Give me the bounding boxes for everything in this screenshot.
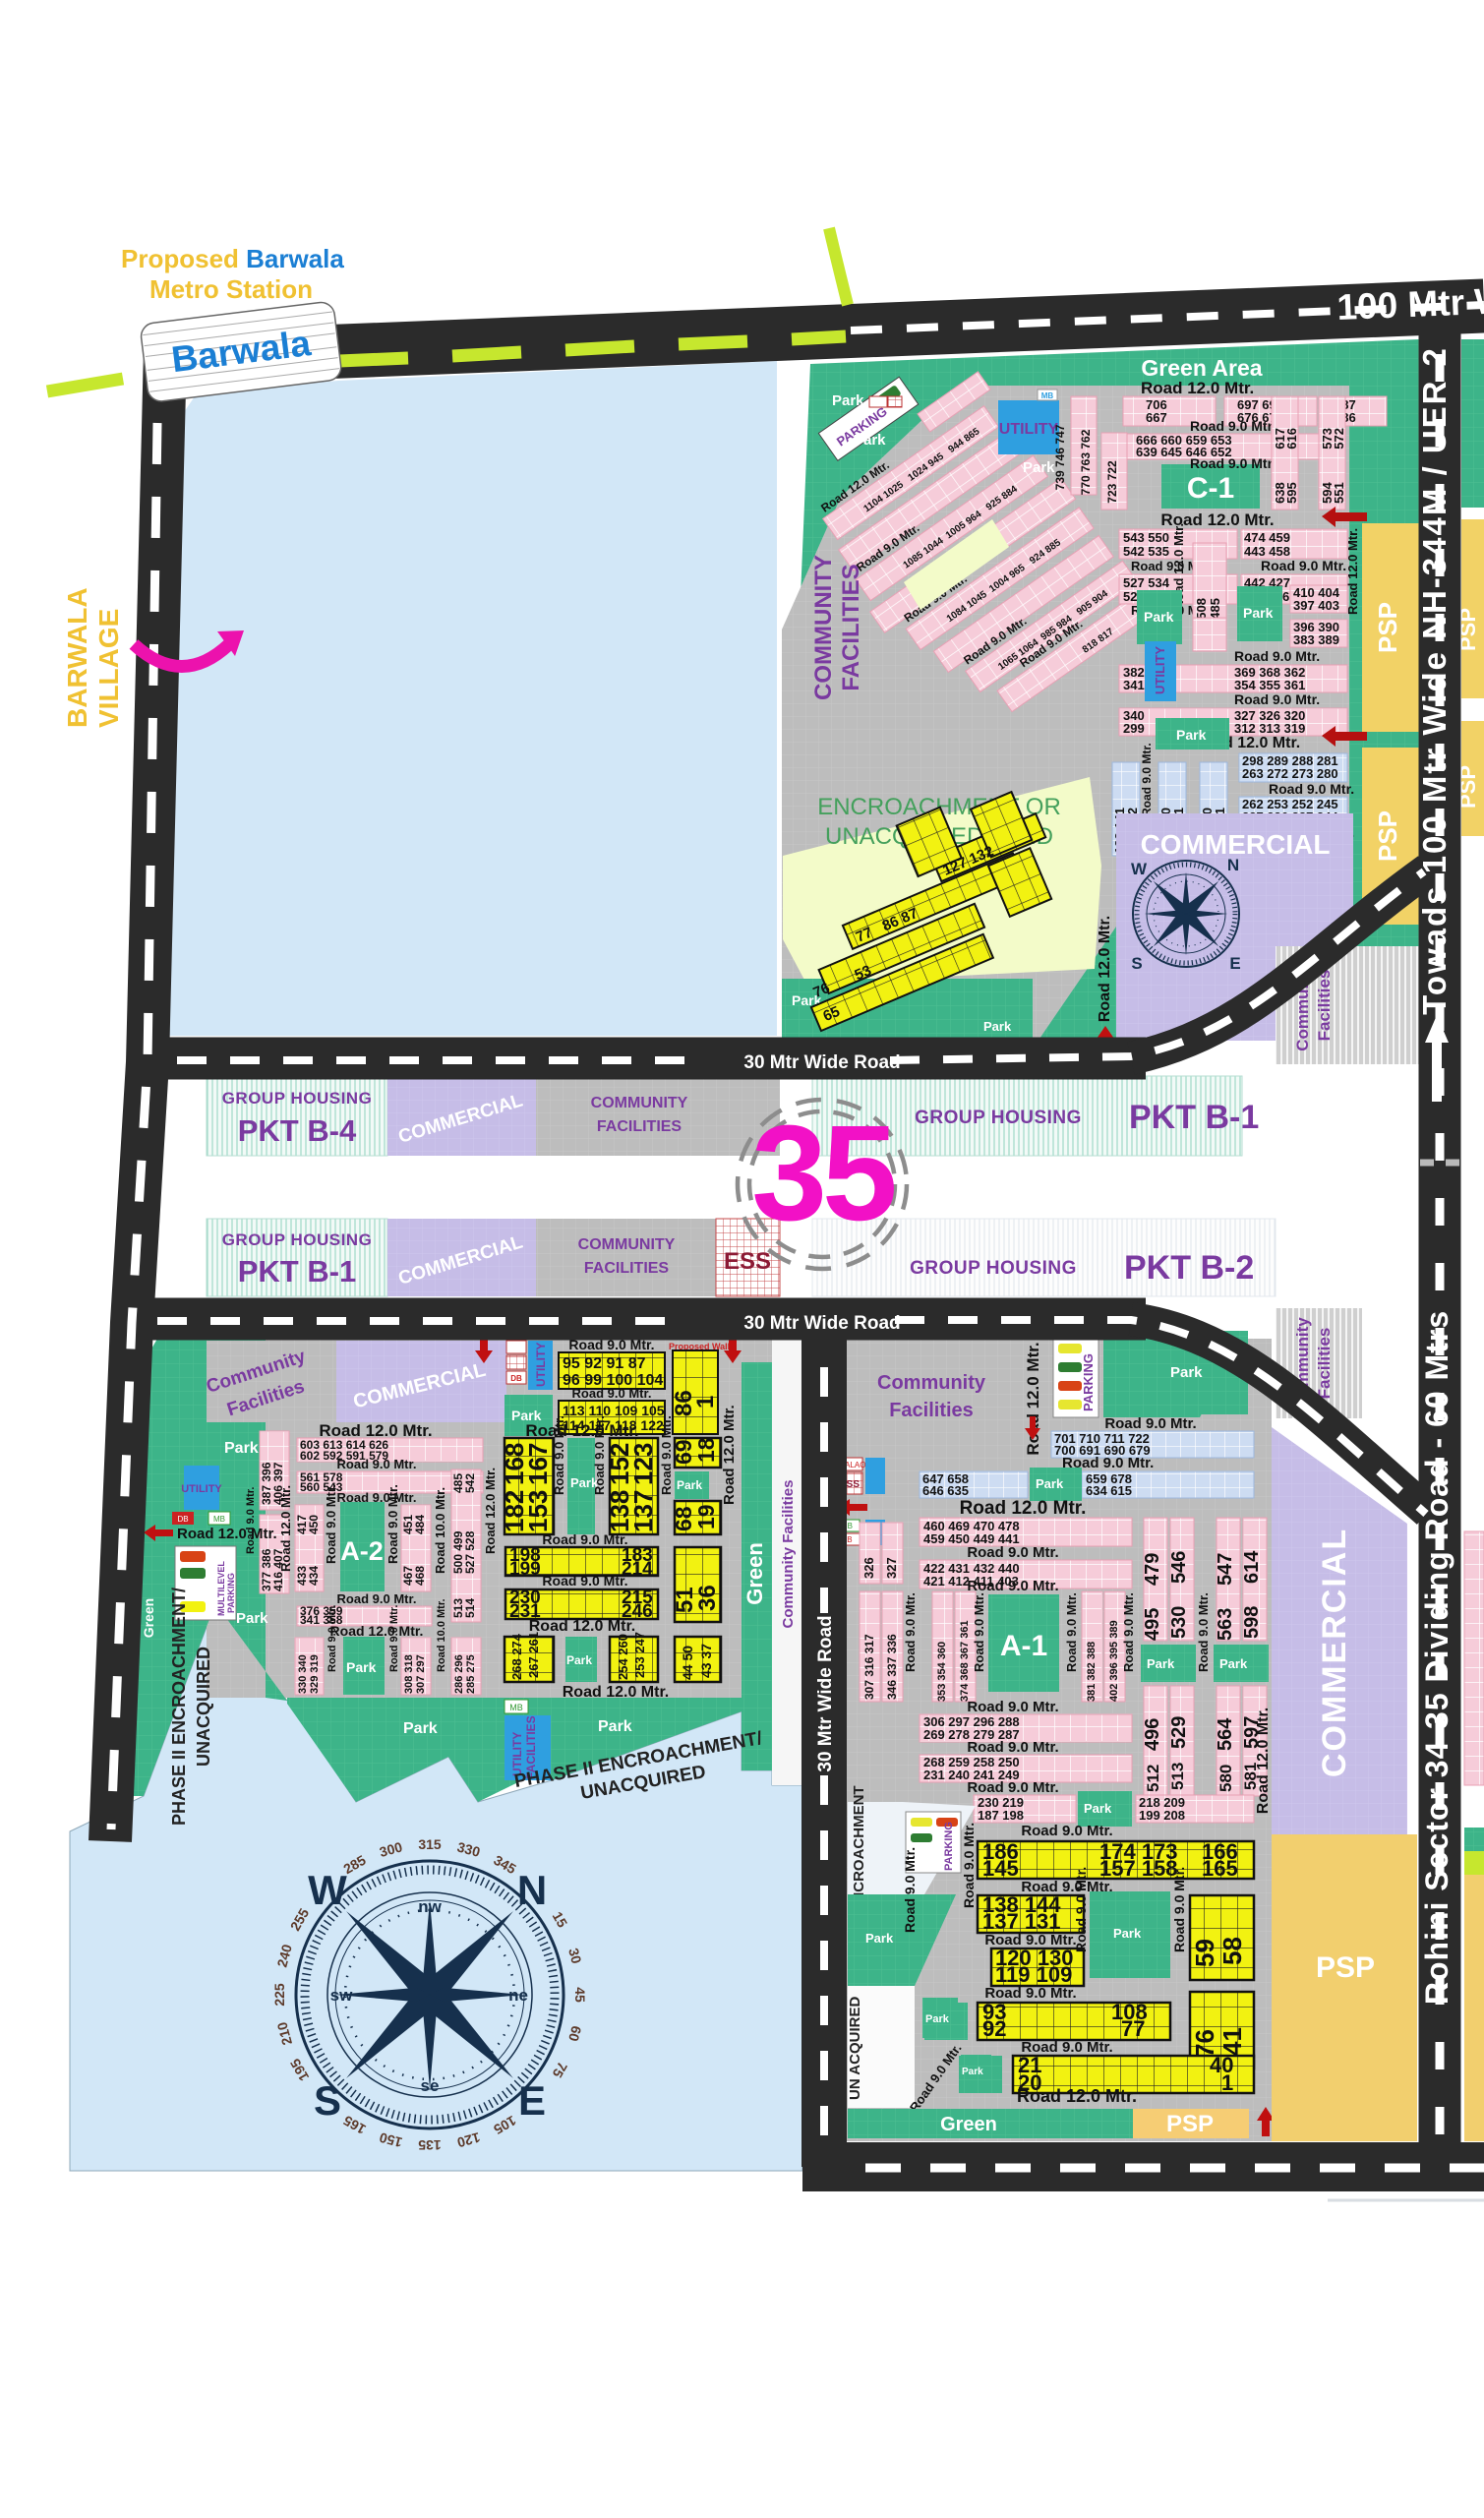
svg-text:PSP: PSP xyxy=(1373,602,1402,653)
svg-text:41: 41 xyxy=(1217,2027,1247,2056)
svg-text:307 316 317: 307 316 317 xyxy=(862,1634,876,1700)
svg-text:Road 9.0 Mtr.: Road 9.0 Mtr. xyxy=(337,1591,417,1606)
svg-text:Park: Park xyxy=(677,1478,702,1492)
svg-text:Road 9.0 Mtr.: Road 9.0 Mtr. xyxy=(1269,781,1354,797)
svg-text:Road 9.0 Mtr.: Road 9.0 Mtr. xyxy=(1171,1867,1187,1952)
svg-text:119 109: 119 109 xyxy=(995,1962,1072,1987)
svg-text:C-1: C-1 xyxy=(1187,472,1234,505)
svg-text:Metro Station: Metro Station xyxy=(149,274,313,304)
svg-text:58: 58 xyxy=(1217,1937,1247,1965)
svg-text:542 535: 542 535 xyxy=(1123,544,1169,559)
svg-text:267 261: 267 261 xyxy=(526,1632,541,1678)
svg-text:GROUP HOUSING: GROUP HOUSING xyxy=(910,1258,1077,1279)
svg-text:Road 9.0 Mtr.: Road 9.0 Mtr. xyxy=(1190,455,1276,471)
svg-text:137: 137 xyxy=(628,1490,658,1532)
svg-text:A-2: A-2 xyxy=(340,1536,384,1566)
svg-text:36: 36 xyxy=(694,1585,721,1611)
svg-text:Road 9.0 Mtr.: Road 9.0 Mtr. xyxy=(659,1415,674,1495)
svg-text:Road 12.0 Mtr.: Road 12.0 Mtr. xyxy=(1097,916,1113,1022)
svg-text:Road 12.0 Mtr.: Road 12.0 Mtr. xyxy=(278,1485,293,1572)
svg-text:Park: Park xyxy=(224,1440,259,1457)
svg-text:Road 9.0 Mtr.: Road 9.0 Mtr. xyxy=(967,1739,1058,1756)
svg-text:484: 484 xyxy=(413,1515,427,1534)
svg-text:474 459: 474 459 xyxy=(1244,530,1290,545)
svg-text:Park: Park xyxy=(403,1720,438,1737)
svg-text:312 313 319: 312 313 319 xyxy=(1234,721,1305,736)
svg-text:Park: Park xyxy=(1176,727,1207,743)
svg-text:434: 434 xyxy=(307,1566,321,1586)
svg-text:Road 10.0 Mtr.: Road 10.0 Mtr. xyxy=(433,1487,447,1574)
svg-text:667: 667 xyxy=(1146,410,1167,425)
svg-text:Road 12.0 Mtr.: Road 12.0 Mtr. xyxy=(721,1405,738,1505)
svg-text:Park: Park xyxy=(854,432,886,449)
svg-text:UN ACQUIRED: UN ACQUIRED xyxy=(847,1997,863,2100)
svg-text:Road 9.0 Mtr.: Road 9.0 Mtr. xyxy=(967,1699,1058,1715)
svg-text:Facilities: Facilities xyxy=(1315,1328,1334,1400)
svg-text:Park: Park xyxy=(983,1019,1012,1034)
svg-text:285 275: 285 275 xyxy=(465,1654,477,1694)
svg-text:Road 9.0 Mtr.: Road 9.0 Mtr. xyxy=(1064,1592,1079,1672)
svg-text:326: 326 xyxy=(861,1557,876,1579)
svg-text:ESS: ESS xyxy=(724,1248,771,1275)
svg-text:346 337 336: 346 337 336 xyxy=(885,1634,899,1700)
svg-text:FACILITIES: FACILITIES xyxy=(597,1118,683,1135)
svg-text:268 274: 268 274 xyxy=(509,1633,524,1680)
svg-text:1: 1 xyxy=(692,1396,719,1409)
svg-text:VILLAGE: VILLAGE xyxy=(93,609,124,728)
svg-text:Road 12.0 Mtr.: Road 12.0 Mtr. xyxy=(1345,528,1360,615)
svg-text:UTILITY: UTILITY xyxy=(181,1483,222,1495)
svg-text:Park: Park xyxy=(1243,605,1274,621)
svg-text:PSP: PSP xyxy=(1166,2111,1214,2137)
svg-text:MB: MB xyxy=(509,1703,523,1712)
svg-text:Road 9.0 Mtr.: Road 9.0 Mtr. xyxy=(245,1487,257,1554)
svg-text:N: N xyxy=(517,1867,547,1913)
svg-text:Park: Park xyxy=(1023,459,1055,476)
svg-text:199: 199 xyxy=(509,1559,541,1580)
svg-text:123: 123 xyxy=(628,1443,658,1485)
svg-text:513: 513 xyxy=(1168,1763,1187,1790)
svg-text:92: 92 xyxy=(982,2016,1006,2041)
svg-text:DB: DB xyxy=(177,1515,188,1524)
svg-text:Park: Park xyxy=(1036,1476,1064,1491)
svg-text:Park: Park xyxy=(1147,1656,1175,1671)
svg-text:Road 9.0 Mtr.: Road 9.0 Mtr. xyxy=(1121,1592,1136,1672)
svg-text:514: 514 xyxy=(463,1598,477,1618)
svg-text:286 296: 286 296 xyxy=(453,1654,465,1694)
svg-text:614: 614 xyxy=(1241,1550,1263,1584)
svg-text:Park: Park xyxy=(566,1653,592,1667)
svg-text:527 528: 527 528 xyxy=(463,1530,477,1574)
svg-text:Road 9.0 Mtr.: Road 9.0 Mtr. xyxy=(1021,1823,1112,1839)
svg-text:Road 9.0 Mtr.: Road 9.0 Mtr. xyxy=(972,1592,986,1672)
svg-text:43 37: 43 37 xyxy=(698,1644,714,1678)
svg-text:Road 9.0 Mtr.: Road 9.0 Mtr. xyxy=(1190,418,1276,434)
svg-text:341: 341 xyxy=(1123,678,1145,692)
svg-text:18: 18 xyxy=(693,1437,719,1463)
svg-text:Road 9.0 Mtr.: Road 9.0 Mtr. xyxy=(388,1605,400,1672)
svg-text:542: 542 xyxy=(463,1473,477,1493)
svg-text:19: 19 xyxy=(693,1504,719,1529)
svg-text:Park: Park xyxy=(1113,1926,1142,1941)
svg-text:S: S xyxy=(314,2077,341,2124)
svg-text:Park: Park xyxy=(598,1718,632,1735)
svg-text:PKT B-1: PKT B-1 xyxy=(1129,1099,1259,1136)
svg-text:Park: Park xyxy=(1084,1801,1112,1816)
svg-text:Road 12.0 Mtr.: Road 12.0 Mtr. xyxy=(483,1468,498,1554)
svg-text:Road 9.0 Mtr.: Road 9.0 Mtr. xyxy=(1261,558,1346,573)
svg-text:sw: sw xyxy=(330,1986,353,2005)
svg-text:N: N xyxy=(1227,856,1239,874)
svg-text:Road 9.0 Mtr.: Road 9.0 Mtr. xyxy=(967,1779,1058,1796)
svg-text:FACILITIES: FACILITIES xyxy=(838,564,864,690)
svg-text:580: 580 xyxy=(1217,1765,1235,1792)
svg-text:Park: Park xyxy=(925,2013,950,2025)
svg-text:UTILITY: UTILITY xyxy=(534,1343,548,1387)
svg-text:BARWALA: BARWALA xyxy=(62,587,92,728)
svg-text:315: 315 xyxy=(418,1836,442,1852)
svg-text:Road 9.0 Mtr.: Road 9.0 Mtr. xyxy=(903,1592,918,1672)
svg-text:MB: MB xyxy=(213,1515,225,1524)
svg-text:S: S xyxy=(1131,954,1142,973)
svg-text:PARKING: PARKING xyxy=(1081,1353,1096,1411)
svg-text:UNACQUIRED: UNACQUIRED xyxy=(194,1647,213,1767)
svg-text:Road 9.0 Mtr.: Road 9.0 Mtr. xyxy=(337,1457,417,1471)
svg-text:Road 12.0 Mtr.: Road 12.0 Mtr. xyxy=(960,1498,1087,1519)
svg-text:44 50: 44 50 xyxy=(680,1646,695,1680)
svg-text:468: 468 xyxy=(413,1566,427,1586)
svg-text:543 550: 543 550 xyxy=(1123,530,1169,545)
svg-text:MB: MB xyxy=(1041,391,1054,400)
svg-text:330 340: 330 340 xyxy=(297,1654,309,1694)
svg-text:Park: Park xyxy=(865,1931,894,1946)
svg-text:Road 9.0 Mtr.: Road 9.0 Mtr. xyxy=(1196,1592,1211,1672)
svg-text:479: 479 xyxy=(1142,1553,1163,1586)
svg-text:646 635: 646 635 xyxy=(922,1483,969,1498)
svg-text:199 208: 199 208 xyxy=(1139,1808,1185,1823)
svg-text:307 297: 307 297 xyxy=(415,1654,427,1694)
svg-text:45: 45 xyxy=(572,1987,588,2003)
svg-text:113 110 109 105: 113 110 109 105 xyxy=(563,1403,665,1418)
svg-text:Road 9.0 Mtr.: Road 9.0 Mtr. xyxy=(1073,1867,1089,1952)
svg-text:Community Facilities: Community Facilities xyxy=(780,1480,797,1629)
svg-text:353 354 360: 353 354 360 xyxy=(936,1642,948,1702)
svg-text:634 615: 634 615 xyxy=(1086,1483,1132,1498)
svg-text:529: 529 xyxy=(1168,1716,1190,1749)
svg-text:COMMUNITY: COMMUNITY xyxy=(591,1095,688,1111)
svg-text:Park: Park xyxy=(832,392,864,409)
svg-text:UTILITY: UTILITY xyxy=(1153,646,1167,694)
svg-text:Road 12.0 Mtr.: Road 12.0 Mtr. xyxy=(330,1623,424,1639)
svg-text:Park: Park xyxy=(1219,1656,1248,1671)
svg-text:30 Mtr Wide Road: 30 Mtr Wide Road xyxy=(743,1052,900,1073)
svg-text:137 131: 137 131 xyxy=(982,1909,1061,1934)
svg-text:Road 9.0 Mtr.: Road 9.0 Mtr. xyxy=(1234,691,1320,707)
svg-text:Park: Park xyxy=(346,1659,377,1675)
svg-text:Road 9.0 Mtr.: Road 9.0 Mtr. xyxy=(324,1484,338,1564)
svg-text:1: 1 xyxy=(1221,2070,1233,2095)
svg-text:327: 327 xyxy=(884,1557,899,1579)
svg-text:PKT B-1: PKT B-1 xyxy=(238,1254,357,1289)
svg-text:Road 9.0 Mtr.: Road 9.0 Mtr. xyxy=(967,1544,1058,1561)
svg-text:Road 12.0 Mtr.: Road 12.0 Mtr. xyxy=(1255,1708,1272,1814)
svg-text:Community: Community xyxy=(877,1372,986,1394)
svg-text:ne: ne xyxy=(508,1986,528,2005)
svg-text:Road 9.0 Mtr.: Road 9.0 Mtr. xyxy=(326,1605,338,1672)
svg-text:100 Mtr Wide: 100 Mtr Wide xyxy=(1336,278,1484,328)
svg-text:Road 10.0 Mtr.: Road 10.0 Mtr. xyxy=(436,1598,447,1672)
svg-text:E: E xyxy=(518,2077,546,2124)
svg-text:Road 9.0 Mtr.: Road 9.0 Mtr. xyxy=(592,1415,607,1495)
svg-text:157 158: 157 158 xyxy=(1099,1856,1178,1881)
svg-text:Rohini Sector 34-35 Dividing R: Rohini Sector 34-35 Dividing Road - 60 M… xyxy=(1419,1310,1454,2005)
svg-text:Road 9.0 Mtr.: Road 9.0 Mtr. xyxy=(967,1578,1058,1594)
svg-text:145: 145 xyxy=(982,1856,1019,1881)
svg-text:COMMUNITY: COMMUNITY xyxy=(810,555,837,700)
svg-text:187 198: 187 198 xyxy=(978,1808,1024,1823)
svg-text:225: 225 xyxy=(271,1983,287,2007)
svg-text:551: 551 xyxy=(1332,482,1346,504)
svg-text:383 389: 383 389 xyxy=(1293,632,1339,647)
svg-text:W: W xyxy=(308,1867,347,1913)
svg-text:Proposed Barwala: Proposed Barwala xyxy=(121,244,344,273)
svg-text:77: 77 xyxy=(1121,2016,1145,2041)
svg-text:Green Area: Green Area xyxy=(1141,355,1262,381)
svg-text:Road 9.0 Mtr.: Road 9.0 Mtr. xyxy=(552,1415,566,1495)
svg-text:Road 9.0 Mtr.: Road 9.0 Mtr. xyxy=(1234,648,1320,664)
svg-text:COMMUNITY: COMMUNITY xyxy=(578,1236,676,1253)
svg-text:Park: Park xyxy=(1144,609,1174,625)
svg-text:PHASE II ENCROACHMENT/: PHASE II ENCROACHMENT/ xyxy=(169,1588,189,1826)
svg-text:546: 546 xyxy=(1168,1551,1190,1584)
svg-text:527 534: 527 534 xyxy=(1123,575,1170,590)
svg-text:Road 9.0 Mtr.: Road 9.0 Mtr. xyxy=(572,1386,652,1401)
svg-text:165: 165 xyxy=(1202,1856,1238,1881)
svg-text:Green: Green xyxy=(742,1542,767,1605)
svg-text:ENCROACHMENT: ENCROACHMENT xyxy=(851,1785,867,1912)
svg-text:254 260: 254 260 xyxy=(616,1634,630,1680)
svg-text:308 318: 308 318 xyxy=(403,1654,415,1694)
svg-text:Road 12.0 Mtr.: Road 12.0 Mtr. xyxy=(177,1526,277,1542)
svg-text:59: 59 xyxy=(1190,1939,1219,1967)
svg-text:Road 12.0 Mtr.: Road 12.0 Mtr. xyxy=(563,1684,669,1701)
svg-text:Road 9.0 Mtr.: Road 9.0 Mtr. xyxy=(542,1573,627,1589)
svg-text:496: 496 xyxy=(1142,1718,1163,1751)
svg-text:FACILITIES: FACILITIES xyxy=(584,1260,670,1277)
svg-text:35: 35 xyxy=(751,1098,894,1249)
svg-text:Road 9.0 Mtr.: Road 9.0 Mtr. xyxy=(386,1484,400,1564)
svg-text:Park: Park xyxy=(1170,1364,1203,1381)
svg-text:Towads 100 Mtr Wide NH-344M /: Towads 100 Mtr Wide NH-344M / UER-2 xyxy=(1416,346,1453,1015)
svg-text:DB: DB xyxy=(510,1374,522,1383)
svg-text:Road 12.0 Mtr.: Road 12.0 Mtr. xyxy=(529,1618,635,1635)
svg-text:Road 12.0 Mtr.: Road 12.0 Mtr. xyxy=(1017,2086,1137,2106)
svg-text:135: 135 xyxy=(418,2137,442,2153)
svg-text:nw: nw xyxy=(418,1897,442,1916)
svg-text:se: se xyxy=(421,2076,440,2095)
svg-text:167: 167 xyxy=(523,1443,553,1485)
svg-text:A-1: A-1 xyxy=(1000,1630,1047,1662)
svg-text:MULTILEVEL: MULTILEVEL xyxy=(216,1561,226,1616)
svg-text:Road 9.0 Mtr.: Road 9.0 Mtr. xyxy=(902,1847,918,1933)
svg-text:Park: Park xyxy=(236,1610,268,1627)
svg-text:Park: Park xyxy=(962,2067,983,2077)
svg-text:739 746 747: 739 746 747 xyxy=(1053,424,1067,490)
svg-text:563: 563 xyxy=(1215,1608,1236,1641)
svg-text:770 763 762: 770 763 762 xyxy=(1079,429,1093,495)
svg-text:595: 595 xyxy=(1284,482,1299,504)
svg-text:30 Mtr Wide Road: 30 Mtr Wide Road xyxy=(743,1313,900,1334)
svg-text:598: 598 xyxy=(1241,1606,1263,1639)
svg-text:UTILITY: UTILITY xyxy=(999,421,1059,438)
svg-text:Green: Green xyxy=(141,1598,156,1638)
svg-text:PSP: PSP xyxy=(1373,810,1402,862)
svg-text:E: E xyxy=(1229,954,1240,973)
svg-text:PARKING: PARKING xyxy=(226,1573,236,1613)
svg-text:564: 564 xyxy=(1215,1717,1236,1751)
svg-text:723 722: 723 722 xyxy=(1105,460,1119,504)
svg-text:263 272 273 280: 263 272 273 280 xyxy=(1242,766,1338,781)
svg-text:PARKING: PARKING xyxy=(943,1822,955,1871)
svg-text:W: W xyxy=(1131,860,1148,878)
svg-text:Facilities: Facilities xyxy=(889,1400,974,1421)
svg-text:572: 572 xyxy=(1332,428,1346,450)
svg-text:329 319: 329 319 xyxy=(309,1654,321,1694)
svg-text:Green: Green xyxy=(940,2114,997,2135)
svg-text:495: 495 xyxy=(1142,1608,1163,1641)
svg-text:Road 9.0 Mtr.: Road 9.0 Mtr. xyxy=(1104,1415,1196,1432)
svg-text:GROUP HOUSING: GROUP HOUSING xyxy=(222,1089,373,1108)
svg-text:Road 12.0 Mtr.: Road 12.0 Mtr. xyxy=(1141,379,1254,397)
svg-text:153: 153 xyxy=(523,1490,553,1532)
svg-text:COMMERCIAL: COMMERCIAL xyxy=(1316,1528,1353,1777)
svg-text:547: 547 xyxy=(1215,1553,1236,1586)
svg-text:616: 616 xyxy=(1284,428,1299,450)
svg-text:Facilities: Facilities xyxy=(1315,970,1334,1042)
svg-text:253 247: 253 247 xyxy=(632,1632,647,1678)
svg-text:450: 450 xyxy=(307,1515,321,1534)
svg-text:GROUP HOUSING: GROUP HOUSING xyxy=(915,1108,1082,1128)
svg-text:GROUP HOUSING: GROUP HOUSING xyxy=(222,1230,373,1249)
svg-text:374 368 367 361: 374 368 367 361 xyxy=(959,1620,971,1702)
svg-text:443 458: 443 458 xyxy=(1244,544,1290,559)
svg-text:PKT B-4: PKT B-4 xyxy=(238,1113,357,1148)
svg-text:397 403: 397 403 xyxy=(1293,598,1339,613)
svg-text:Road 9.0 Mtr.: Road 9.0 Mtr. xyxy=(1140,743,1154,816)
svg-text:95 92 91 87: 95 92 91 87 xyxy=(563,1355,646,1372)
svg-text:PKT B-2: PKT B-2 xyxy=(1124,1249,1254,1287)
svg-text:530: 530 xyxy=(1168,1606,1190,1639)
svg-text:402 396 395 389: 402 396 395 389 xyxy=(1108,1620,1120,1702)
svg-text:30 Mtr Wide Road: 30 Mtr Wide Road xyxy=(815,1615,836,1771)
svg-text:Road 9.0 Mtr.: Road 9.0 Mtr. xyxy=(542,1531,627,1547)
svg-text:PSP: PSP xyxy=(1316,1951,1375,1984)
svg-text:354 355 361: 354 355 361 xyxy=(1234,678,1305,692)
svg-text:299: 299 xyxy=(1123,721,1145,736)
svg-text:381 382 388: 381 382 388 xyxy=(1086,1642,1098,1702)
svg-text:Road 9.0 Mtr.: Road 9.0 Mtr. xyxy=(961,1823,977,1908)
svg-text:512: 512 xyxy=(1144,1765,1162,1792)
